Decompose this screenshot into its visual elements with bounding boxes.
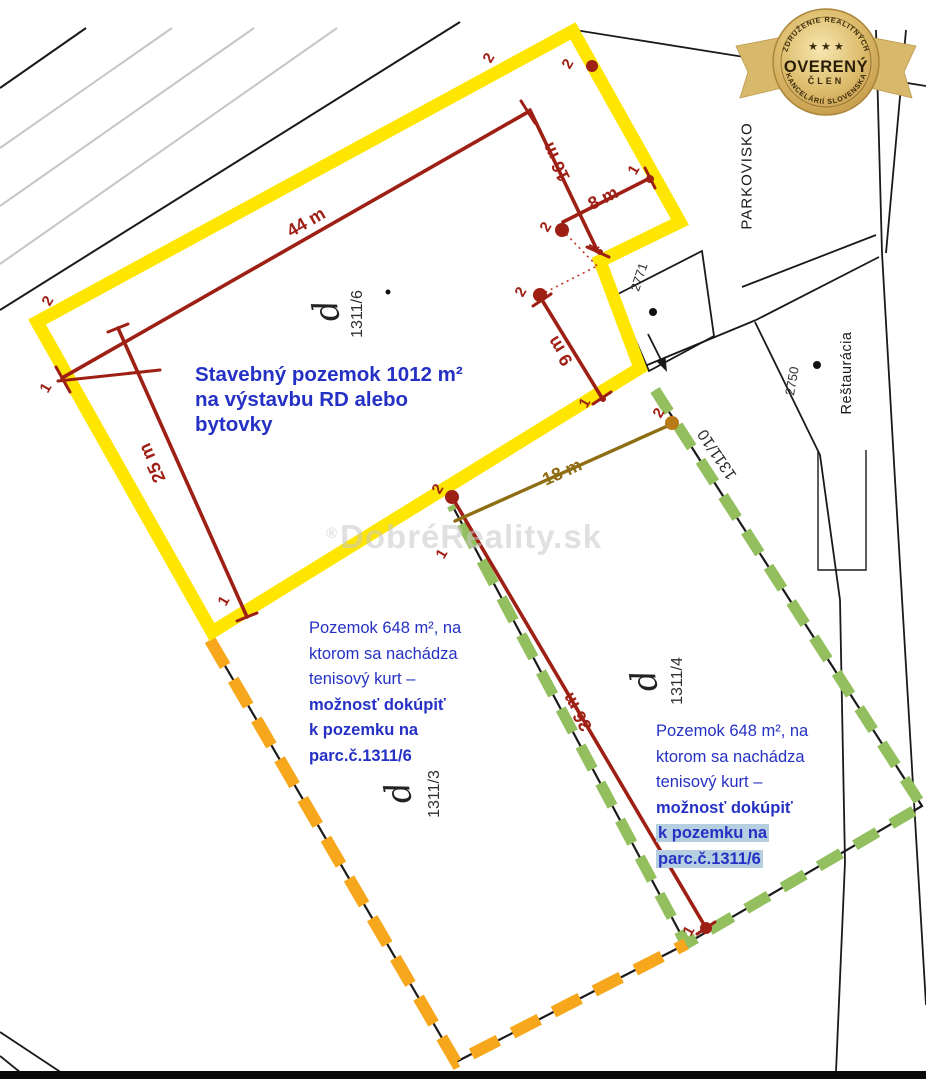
- survey-point-label: 1: [680, 924, 697, 939]
- annotation-line: parc.č.1311/6: [656, 847, 808, 873]
- annotation-line: Pozemok 648 m², na: [309, 616, 461, 642]
- left-plot-annotation: Pozemok 648 m², na ktorom sa nachádza te…: [309, 616, 461, 769]
- measurement-8m: 8 m: [585, 183, 621, 213]
- annotation-line: parc.č.1311/6: [309, 744, 461, 770]
- annotation-line: Pozemok 648 m², na: [656, 719, 808, 745]
- survey-point-label: 2: [429, 482, 446, 497]
- parcel-label-1311-10: 1311/10: [696, 426, 741, 482]
- map-labels: 2 2 2 1 1 2 1 1 2 1 2 1 2 1 44 m 16 m 8 …: [0, 0, 926, 1079]
- land-use-symbol: d: [380, 779, 417, 806]
- survey-point-label: 1: [585, 241, 602, 256]
- survey-point-label: 2: [650, 406, 667, 421]
- annotation-line: možnosť dokúpiť: [309, 693, 461, 719]
- annotation-line: možnosť dokúpiť: [656, 796, 808, 822]
- annotation-line: tenisový kurt –: [656, 770, 808, 796]
- survey-point-label: 1: [433, 547, 450, 562]
- measurement-36m: 36 m: [559, 690, 595, 735]
- annotation-line: tenisový kurt –: [309, 667, 461, 693]
- badge-stars: ★ ★ ★: [808, 41, 844, 53]
- parcel-label-1311-3: 1311/3: [427, 770, 443, 818]
- right-plot-annotation: Pozemok 648 m², na ktorom sa nachádza te…: [656, 719, 808, 872]
- parcel-label-2771: 2771: [628, 261, 649, 293]
- annotation-line: na výstavbu RD alebo: [195, 387, 463, 412]
- survey-point-label: 2: [537, 220, 554, 235]
- verified-member-badge: ZDRUŽENIE REALITNÝCH KANCELÁRIÍ SLOVENSK…: [728, 4, 924, 124]
- highlighted-text: parc.č.1311/6: [656, 850, 763, 868]
- survey-point-label: 2: [559, 57, 576, 72]
- measurement-16m: 16 m: [539, 140, 573, 185]
- annotation-line: Stavebný pozemok 1012 m²: [195, 362, 463, 387]
- survey-point-label: 1: [576, 396, 593, 411]
- area-label-parkovisko: PARKOVISKO: [740, 122, 755, 229]
- survey-point-label: 1: [625, 163, 642, 178]
- survey-point-label: 2: [39, 294, 56, 309]
- survey-point-label: 1: [215, 594, 232, 609]
- parcel-label-1311-6: 1311/6: [350, 290, 366, 338]
- measurement-44m: 44 m: [284, 204, 329, 240]
- survey-point-label: 2: [512, 285, 529, 300]
- land-use-symbol: d: [308, 297, 345, 324]
- badge-title: OVERENÝ: [784, 57, 868, 76]
- annotation-line: ktorom sa nachádza: [309, 642, 461, 668]
- parcel-label-2750: 2750: [783, 366, 801, 397]
- area-label-restauracia: Reštaurácia: [840, 332, 855, 415]
- survey-point-label: 2: [480, 51, 497, 66]
- survey-point-label: 1: [37, 381, 54, 396]
- measurement-25m: 25 m: [135, 441, 168, 486]
- measurement-18m: 18 m: [540, 455, 585, 488]
- annotation-line: k pozemku na: [656, 821, 808, 847]
- annotation-line: k pozemku na: [309, 718, 461, 744]
- annotation-line: bytovky: [195, 412, 463, 437]
- measurement-9m: 9 m: [544, 333, 576, 369]
- badge-subtitle: ČLEN: [808, 75, 845, 86]
- highlighted-text: k pozemku na: [656, 824, 769, 842]
- main-plot-annotation: Stavebný pozemok 1012 m² na výstavbu RD …: [195, 362, 463, 437]
- annotation-line: ktorom sa nachádza: [656, 745, 808, 771]
- land-use-symbol: d: [626, 667, 663, 694]
- cadastral-map: ®DobréReality.sk 2 2 2 1 1 2 1 1 2 1 2 1…: [0, 0, 926, 1079]
- parcel-label-1311-4: 1311/4: [670, 657, 686, 705]
